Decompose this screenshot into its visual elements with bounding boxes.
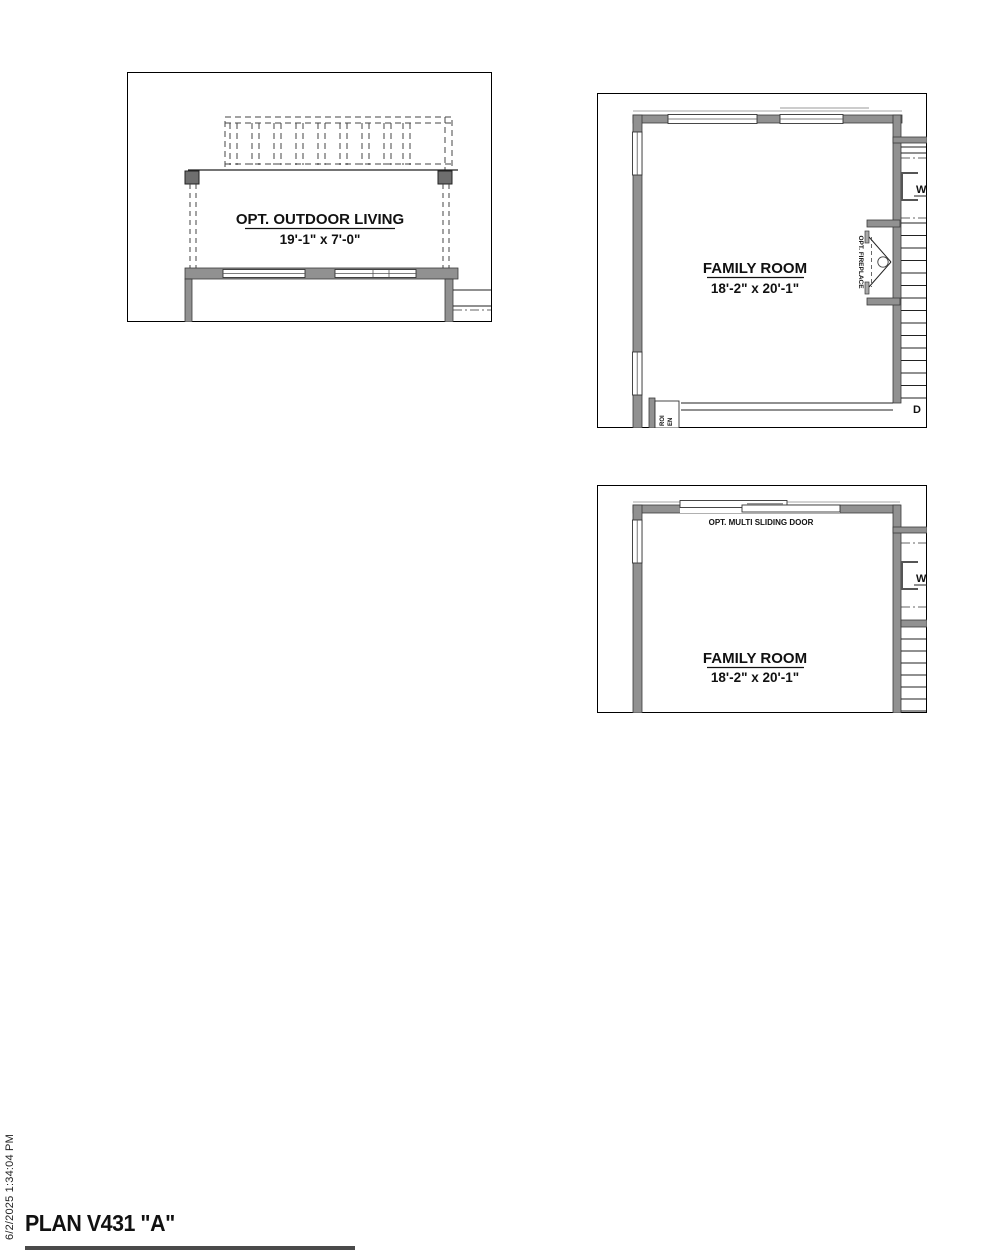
washer-label: W: [916, 573, 927, 585]
panel-border: [128, 73, 492, 322]
pergola-icon: [225, 117, 452, 170]
post-left-icon: [185, 171, 199, 184]
stairs-icon: [901, 223, 926, 398]
wall-stub: [649, 398, 655, 428]
wall-stub-left: [185, 279, 192, 322]
panel-outdoor-living: OPT. OUTDOOR LIVING 19'-1" x 7'-0": [127, 72, 492, 322]
panel-family-room-sliding: OPT. MULTI SLIDING DOOR W: [597, 485, 927, 713]
bottom-wall: [649, 398, 893, 428]
dryer-label: D: [913, 404, 921, 416]
utility-strip: W: [901, 147, 927, 218]
corner-label-line2: EN: [668, 418, 674, 426]
rear-wall: [185, 268, 458, 279]
room-dims-label: 18'-2" x 20'-1": [711, 670, 799, 685]
top-wall: [633, 501, 900, 514]
family-room-fireplace-drawing: W: [597, 93, 927, 428]
floor-plan-sheet: OPT. OUTDOOR LIVING 19'-1" x 7'-0": [0, 0, 1000, 1250]
sliding-door-label: OPT. MULTI SLIDING DOOR: [709, 518, 814, 527]
stairs-icon: [901, 639, 926, 711]
left-wall: [633, 115, 643, 428]
page-title: PLAN V431 "A": [25, 1210, 175, 1237]
corner-cabinet: [655, 401, 679, 428]
room-name-label: FAMILY ROOM: [703, 260, 807, 277]
porch-step-lines: [453, 290, 491, 310]
wall-stub-right: [445, 279, 453, 322]
sliding-door-panel-icon: [742, 505, 840, 512]
panel-family-room-fireplace: W: [597, 93, 927, 428]
room-dims-label: 19'-1" x 7'-0": [280, 232, 361, 247]
left-wall: [633, 505, 643, 713]
outdoor-living-drawing: OPT. OUTDOOR LIVING 19'-1" x 7'-0": [127, 72, 492, 322]
fireplace-label: OPT. FIREPLACE: [857, 235, 864, 289]
right-wall-jog: [893, 137, 927, 143]
utility-strip: W: [901, 543, 927, 627]
corner-label-line1: ROI: [660, 415, 666, 426]
right-wall: [893, 115, 901, 403]
room-name-label: OPT. OUTDOOR LIVING: [236, 211, 404, 228]
title-block-bar: [25, 1246, 355, 1250]
room-dims-label: 18'-2" x 20'-1": [711, 281, 799, 296]
family-room-sliding-drawing: OPT. MULTI SLIDING DOOR W: [597, 485, 927, 713]
print-timestamp: 6/2/2025 1:34:04 PM: [4, 1134, 16, 1240]
right-wall-jog: [893, 527, 927, 533]
post-right-icon: [438, 171, 452, 184]
washer-label: W: [916, 184, 927, 196]
right-wall: [893, 505, 901, 713]
room-name-label: FAMILY ROOM: [703, 650, 807, 667]
top-wall: [633, 108, 902, 124]
